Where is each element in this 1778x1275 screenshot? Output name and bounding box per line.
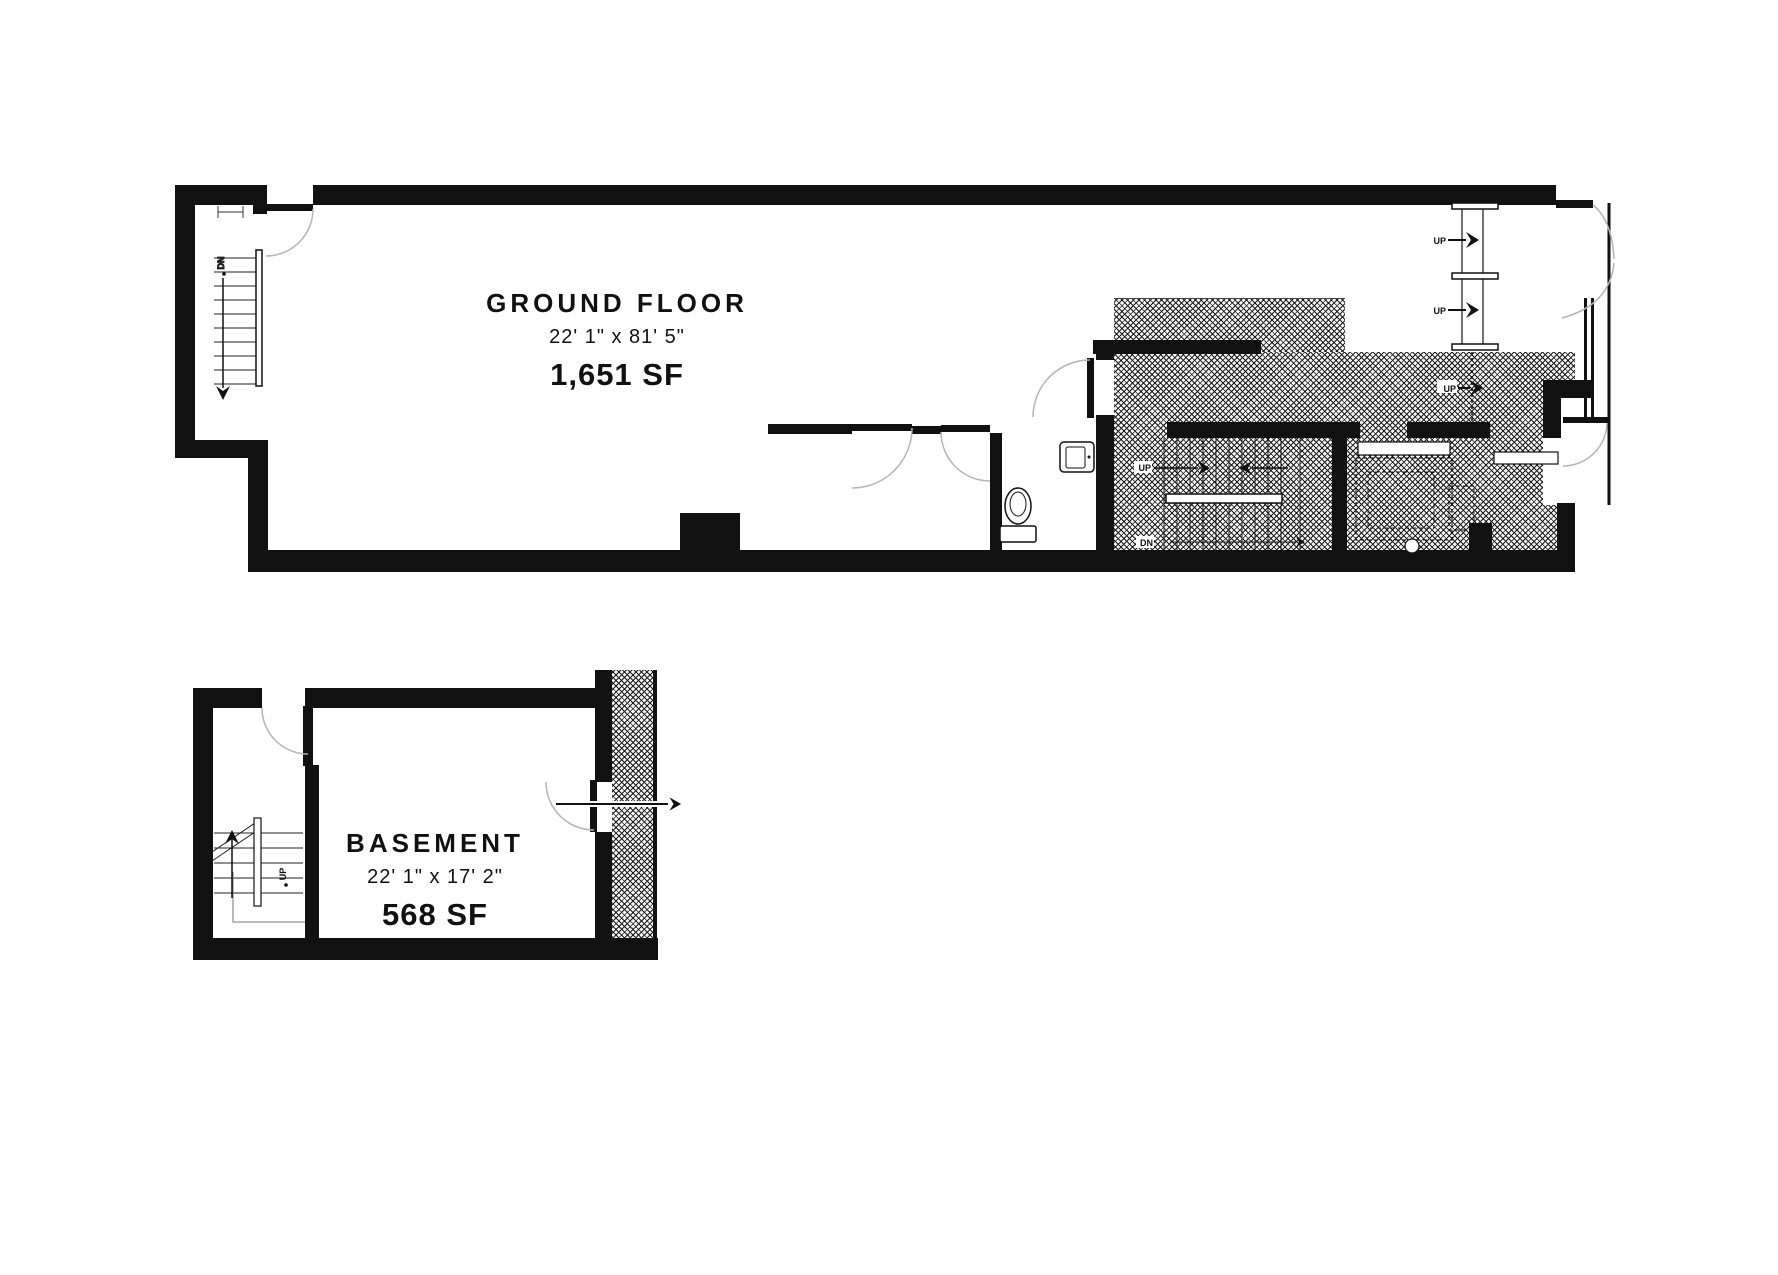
stairhall-dn-label: DN (1140, 538, 1153, 548)
basement-dimensions: 22' 1" x 17' 2" (268, 864, 602, 890)
entry-steps: UP UP UP (1433, 203, 1498, 432)
ground-floor-dimensions: 22' 1" x 81' 5" (450, 324, 784, 350)
storefront (1556, 200, 1614, 505)
ground-floor-area: 1,651 SF (450, 358, 784, 392)
entry-up-label-3: UP (1443, 384, 1456, 394)
basement-area: 568 SF (268, 898, 602, 932)
basement-label-block: BASEMENT 22' 1" x 17' 2" 568 SF (268, 828, 602, 932)
bathroom-vestibule-doors (852, 358, 1094, 488)
stair-dn-label: DN (216, 257, 226, 270)
sink-icon (1060, 442, 1094, 472)
ground-floor-label-block: GROUND FLOOR 22' 1" x 81' 5" 1,651 SF (450, 288, 784, 392)
plan-linework: DN (0, 0, 1778, 1275)
stairhall-up-label: UP (1138, 463, 1151, 473)
floor-plan-canvas: DN (0, 0, 1778, 1275)
back-room-equipment (1356, 442, 1558, 553)
entry-up-label-2: UP (1433, 306, 1446, 316)
ground-entry-door-topleft (218, 204, 313, 256)
entry-up-label-1: UP (1433, 236, 1446, 246)
basement-title: BASEMENT (268, 828, 602, 858)
ground-floor-title: GROUND FLOOR (450, 288, 784, 318)
ground-stair-down: DN (214, 250, 262, 400)
basement-doors (262, 706, 682, 832)
ground-stair-hall: UP DN (1134, 438, 1305, 550)
toilet-icon (1000, 488, 1036, 542)
